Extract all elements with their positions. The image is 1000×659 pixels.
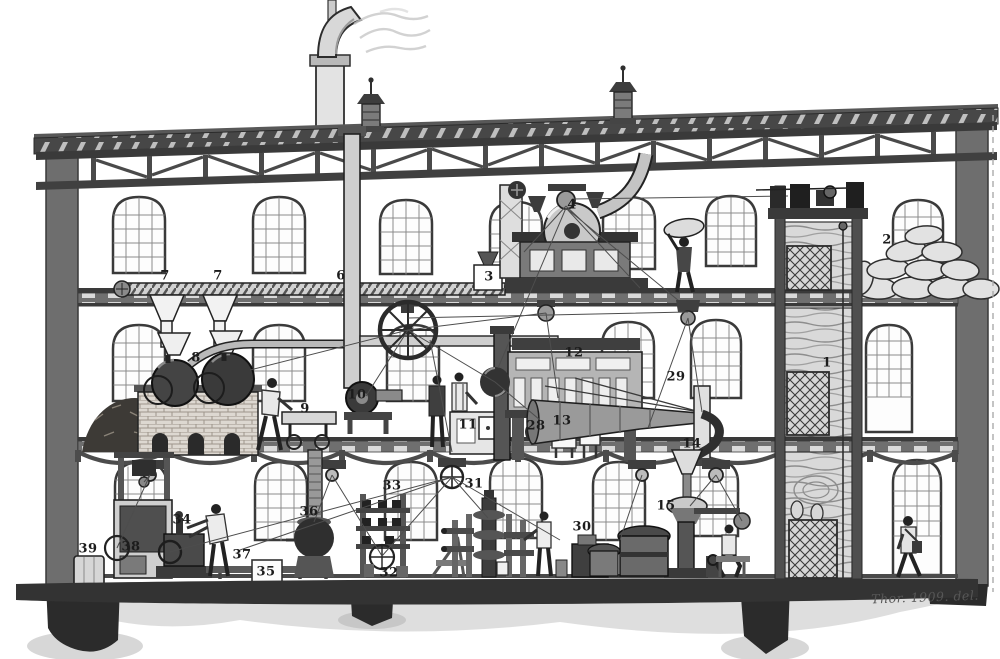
window-tall xyxy=(893,460,941,575)
satchel xyxy=(912,541,922,553)
left-wall xyxy=(46,144,78,586)
roof-truss xyxy=(34,104,998,190)
machine-32-pots xyxy=(364,564,374,577)
chimney-cowl xyxy=(318,7,361,57)
elevator-gate xyxy=(789,520,837,578)
engraving-artwork xyxy=(0,0,1000,659)
elevator-gate xyxy=(787,246,831,290)
counterweight xyxy=(791,501,803,519)
roasting-furnaces xyxy=(134,331,348,455)
elevator-shaft xyxy=(756,182,868,580)
window xyxy=(253,197,305,273)
window-tall xyxy=(866,325,912,432)
machine-35-plaque xyxy=(252,560,282,584)
smoke xyxy=(354,9,430,52)
window xyxy=(380,200,432,274)
screw-conveyor xyxy=(125,283,505,295)
machine-3-plaque xyxy=(474,265,502,290)
window xyxy=(113,197,165,273)
roof-ventilator-right xyxy=(609,65,637,124)
machine-33-rack xyxy=(356,494,410,578)
window xyxy=(490,458,542,538)
factory-cross-section-engraving: Thor. 1909. del. 77634281091112281329141… xyxy=(0,0,1000,659)
elevator-gate xyxy=(787,372,829,435)
window xyxy=(706,196,756,266)
cart xyxy=(282,412,336,424)
right-wall xyxy=(956,118,988,586)
worker-carrying-sack xyxy=(663,216,705,292)
